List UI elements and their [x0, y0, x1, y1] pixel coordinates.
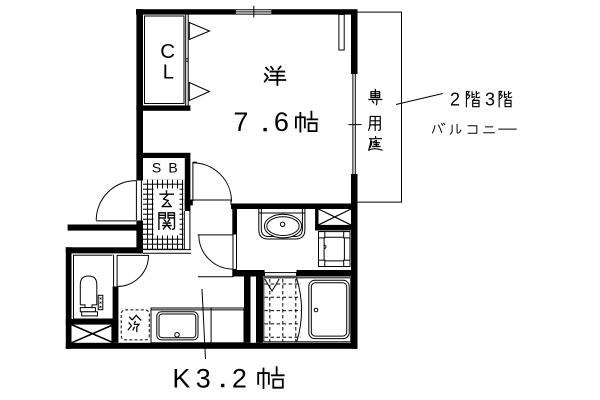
svg-text:3: 3: [485, 89, 495, 109]
svg-text:S: S: [152, 159, 161, 175]
svg-text:2: 2: [450, 89, 460, 109]
svg-text:7: 7: [233, 107, 248, 137]
svg-text:C: C: [160, 40, 175, 63]
svg-text:3: 3: [196, 363, 211, 393]
svg-text:L: L: [163, 62, 174, 84]
svg-text:6: 6: [274, 107, 289, 137]
svg-text:B: B: [168, 159, 177, 175]
svg-text:2: 2: [232, 363, 247, 393]
svg-text:K: K: [172, 363, 190, 393]
